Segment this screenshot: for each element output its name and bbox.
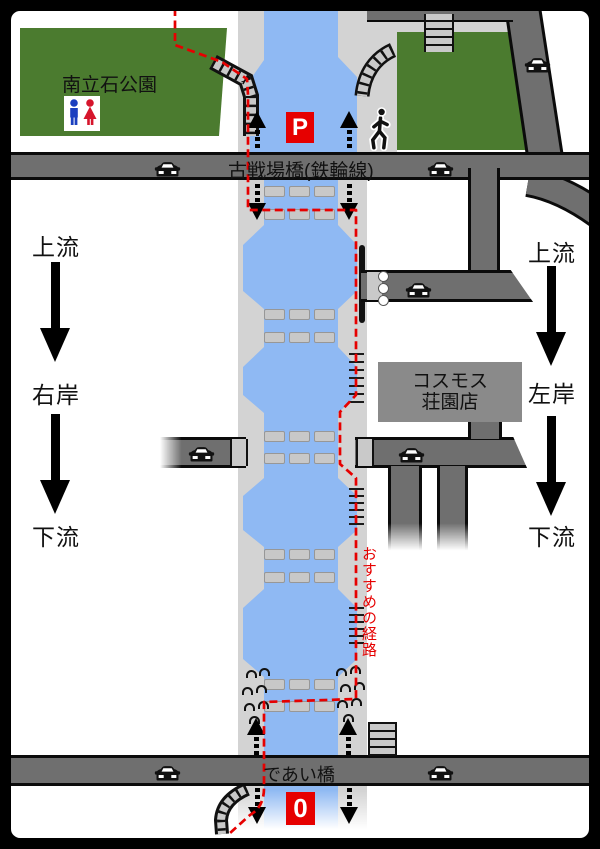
- left-upstream-label: 上流: [32, 228, 80, 262]
- bottom-road-label: であい橋: [263, 761, 335, 787]
- car-icon: [427, 764, 454, 781]
- right-downstream-label: 下流: [528, 518, 576, 552]
- recommended-route-label: おすすめの経路: [358, 546, 379, 658]
- car-icon: [524, 56, 551, 73]
- parking-marker: P: [286, 112, 314, 143]
- left-bank-label: 左岸: [528, 375, 576, 409]
- start-point-marker: 0: [286, 792, 315, 825]
- car-icon: [398, 446, 425, 463]
- right-bank-label: 右岸: [32, 376, 80, 410]
- pedestrian-icon: [367, 107, 394, 151]
- park-name-label: 南立石公園: [62, 70, 157, 97]
- guide-map: コスモス 荘園店 南立石公園 古戦場橋(鉄輪線) であい橋 上流 右岸 下流 上…: [0, 0, 600, 849]
- car-icon: [405, 281, 432, 298]
- right-upstream-label: 上流: [528, 234, 576, 268]
- restroom-icon: [64, 96, 100, 131]
- car-icon: [154, 764, 181, 781]
- left-downstream-label: 下流: [32, 518, 80, 552]
- car-icon: [427, 160, 454, 177]
- top-road-label: 古戦場橋(鉄輪線): [228, 156, 374, 183]
- car-icon: [188, 445, 215, 462]
- car-icon: [154, 160, 181, 177]
